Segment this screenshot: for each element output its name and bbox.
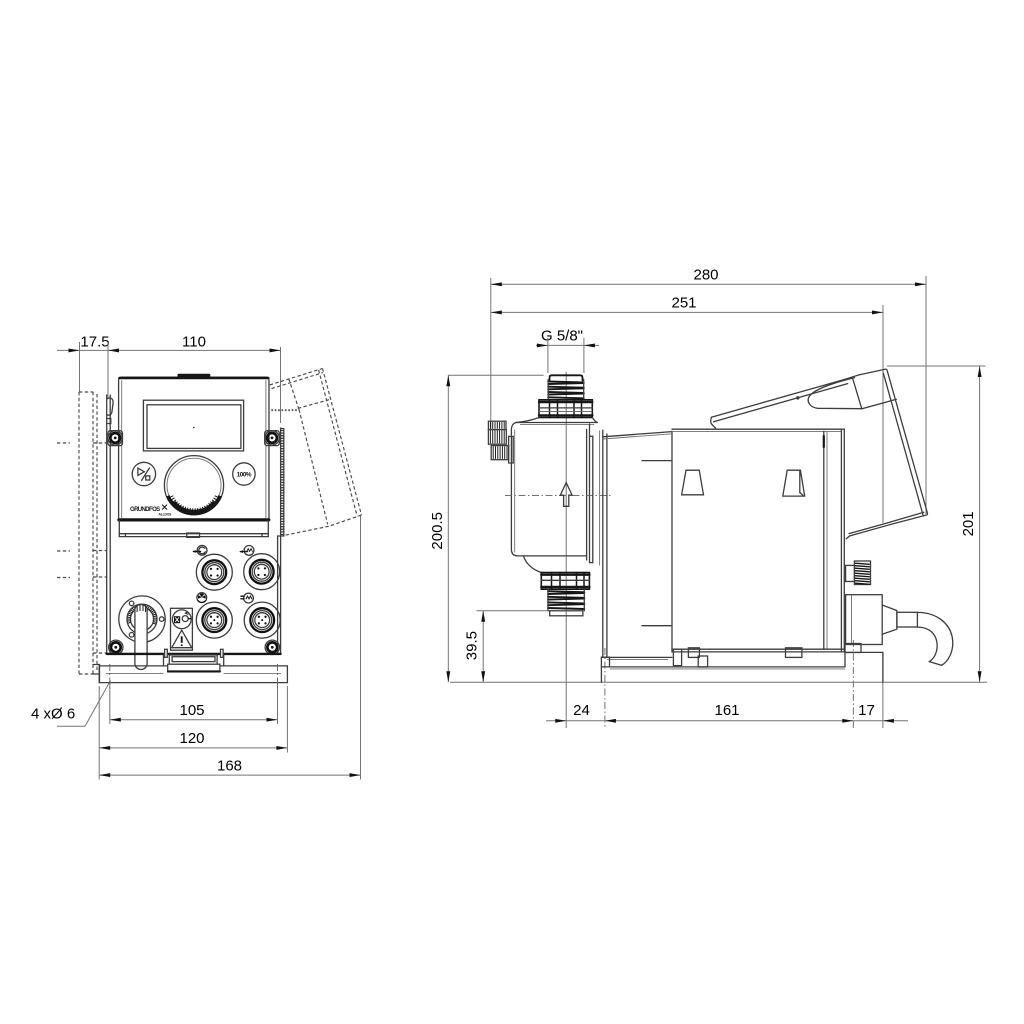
svg-text:120: 120 (179, 730, 204, 747)
svg-text:ALLDOS: ALLDOS (159, 512, 173, 516)
svg-text:251: 251 (671, 295, 696, 312)
svg-text:200.5: 200.5 (429, 512, 446, 550)
svg-text:110: 110 (182, 334, 206, 351)
svg-text:39.5: 39.5 (464, 631, 481, 660)
svg-text:G 5/8": G 5/8" (541, 328, 583, 345)
svg-text:201: 201 (960, 511, 977, 536)
svg-text:17: 17 (858, 702, 875, 719)
svg-text:17.5: 17.5 (80, 334, 109, 351)
svg-text:161: 161 (714, 702, 739, 719)
svg-text:105: 105 (179, 702, 204, 719)
svg-text:24: 24 (573, 702, 590, 719)
svg-text:280: 280 (693, 267, 718, 284)
svg-text:4 xØ 6: 4 xØ 6 (31, 706, 75, 723)
svg-text:GRUNDFOS: GRUNDFOS (130, 507, 160, 513)
svg-text:168: 168 (217, 757, 242, 774)
svg-text:100%: 100% (237, 471, 252, 478)
